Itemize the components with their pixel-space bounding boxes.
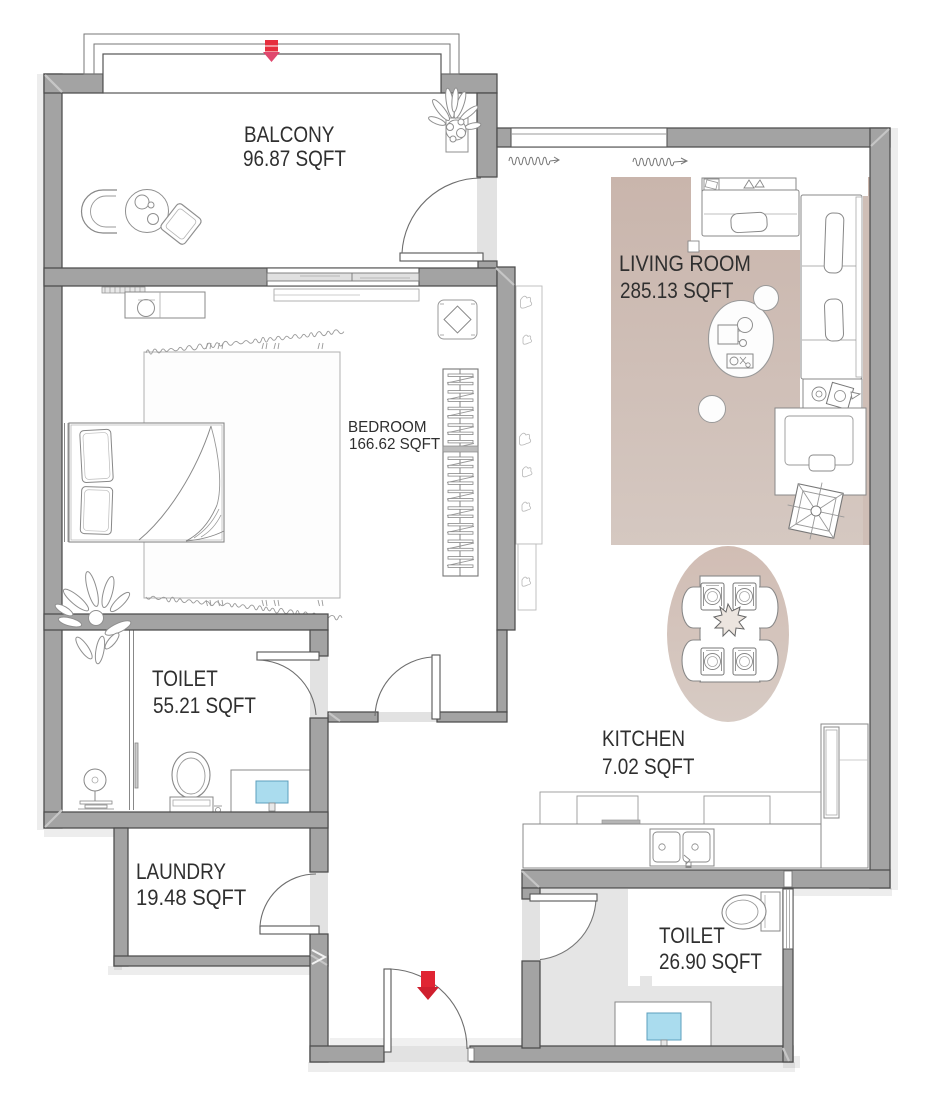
svg-text:55.21 SQFT: 55.21 SQFT xyxy=(153,694,256,719)
svg-text:285.13 SQFT: 285.13 SQFT xyxy=(620,279,734,304)
svg-text:KITCHEN: KITCHEN xyxy=(602,727,685,752)
svg-text:96.87 SQFT: 96.87 SQFT xyxy=(243,147,346,172)
svg-text:TOILET: TOILET xyxy=(152,667,218,692)
svg-text:BEDROOM: BEDROOM xyxy=(348,419,426,436)
svg-text:166.62 SQFT: 166.62 SQFT xyxy=(349,436,441,453)
svg-text:LIVING ROOM: LIVING ROOM xyxy=(619,252,751,276)
svg-text:TOILET: TOILET xyxy=(659,924,725,949)
svg-text:BALCONY: BALCONY xyxy=(244,123,335,148)
svg-text:19.48 SQFT: 19.48 SQFT xyxy=(136,886,246,910)
svg-text:7.02 SQFT: 7.02 SQFT xyxy=(602,755,695,780)
svg-text:26.90 SQFT: 26.90 SQFT xyxy=(659,950,762,975)
svg-text:LAUNDRY: LAUNDRY xyxy=(136,860,226,885)
